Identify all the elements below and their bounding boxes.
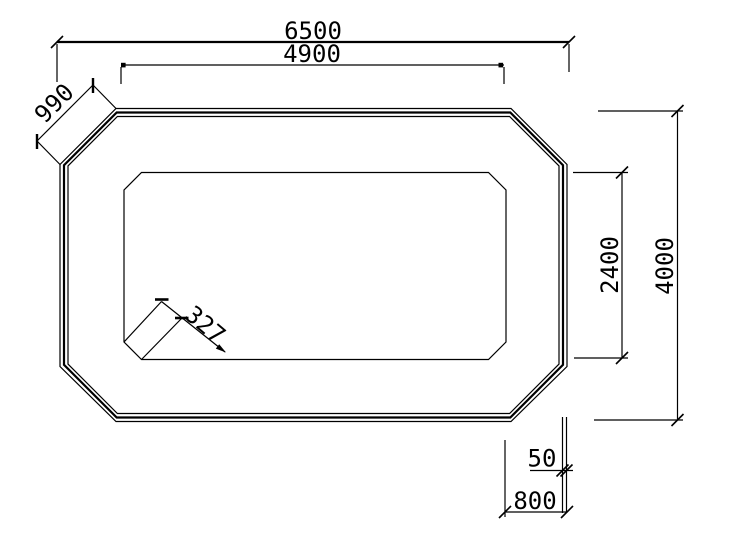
inner-octagon-outline [68, 117, 559, 414]
dim-label-inner-corner-chamfer: 327 [180, 300, 231, 349]
dimension-inner-width: 4900 [121, 40, 504, 84]
dim-label-border-band-gap: 50 [528, 445, 557, 473]
extension-line [124, 302, 162, 343]
dim-label-corner-chamfer: 990 [29, 78, 79, 128]
extension-line [142, 319, 182, 360]
cad-drawing-viewport: 6500 4900 990 4000 [0, 0, 743, 534]
dim-label-border-offset: 800 [513, 487, 556, 515]
dimension-inner-corner-chamfer: 327 [124, 300, 231, 360]
technical-drawing: 6500 4900 990 4000 [0, 0, 743, 534]
dim-label-inner-width: 4900 [283, 40, 341, 68]
extension-line [37, 141, 60, 165]
middle-octagon-outline [64, 113, 563, 418]
dim-label-inner-height: 2400 [596, 236, 624, 294]
extension-line [93, 85, 116, 109]
dimension-inner-height: 2400 [573, 167, 628, 365]
inner-panel-outline [124, 173, 506, 360]
outer-octagon-outline [60, 109, 567, 422]
square-terminator [499, 63, 504, 68]
dim-label-overall-height: 4000 [651, 237, 679, 295]
octagon-outline-group [60, 109, 567, 422]
square-terminator [121, 63, 126, 68]
